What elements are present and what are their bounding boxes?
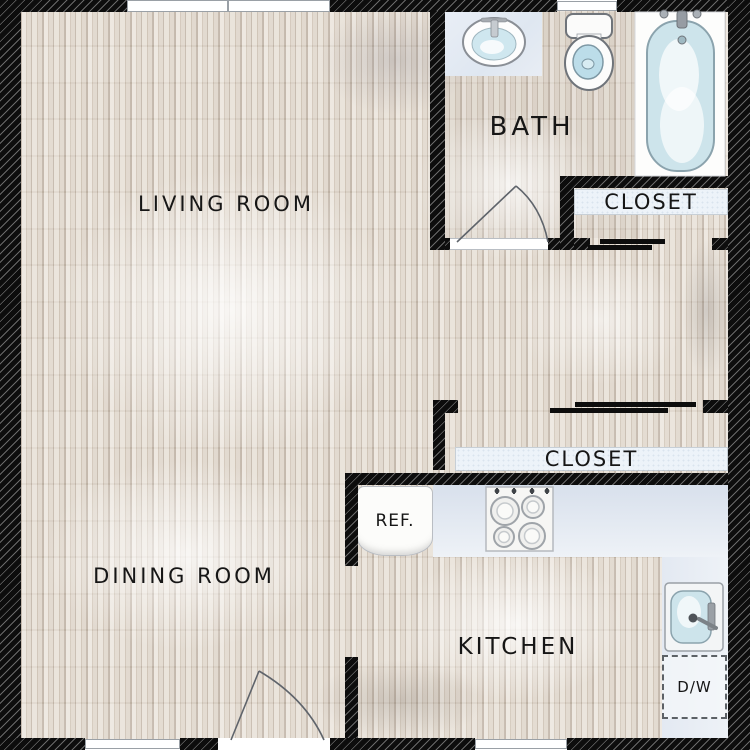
floor-smudge — [315, 660, 485, 740]
floor-shading — [45, 460, 325, 650]
closet-lower-bypass-door — [550, 408, 668, 413]
closet-upper-bypass-door — [600, 239, 665, 244]
closet-upper-band: CLOSET — [574, 189, 728, 215]
kitchen-label: KITCHEN — [458, 634, 579, 660]
wall-closet-lower-left — [433, 400, 445, 470]
living-room-label: LIVING ROOM — [138, 192, 314, 216]
window-dining — [85, 739, 180, 749]
bath-label: BATH — [489, 112, 574, 142]
wall-living-bath — [430, 11, 445, 250]
outer-wall-right — [728, 0, 750, 750]
wall-kitchen-top — [345, 473, 728, 485]
wall-closet-upper-left — [560, 176, 574, 250]
wall-kitchen-west-upper — [345, 473, 358, 566]
floor-smudge — [682, 240, 732, 380]
dishwasher-icon: D/W — [662, 655, 727, 719]
floor-shading — [515, 255, 685, 385]
outer-wall-bottom-1 — [0, 738, 85, 750]
refrigerator-icon: REF. — [357, 486, 433, 556]
outer-wall-bottom-2 — [180, 738, 218, 750]
wall-closet-upper-jamb-right — [712, 238, 728, 250]
closet-upper-label: CLOSET — [604, 190, 698, 214]
refrigerator-label: REF. — [375, 511, 414, 531]
window-living-divider — [227, 1, 229, 11]
floor-plan: CLOSET CLOSET REF. D/W — [0, 0, 750, 750]
closet-lower-label: CLOSET — [545, 447, 639, 471]
wall-closet-upper-top — [560, 176, 728, 188]
closet-lower-band: CLOSET — [455, 447, 728, 471]
outer-wall-left — [0, 0, 21, 750]
dishwasher-label: D/W — [677, 678, 711, 696]
window-kitchen — [475, 739, 567, 749]
bath-door-opening — [450, 238, 548, 250]
kitchen-counter-top — [433, 485, 728, 557]
wall-kitchen-west-lower — [345, 657, 358, 738]
dining-room-label: DINING ROOM — [93, 564, 275, 588]
closet-lower-bypass-door — [575, 402, 696, 407]
entry-door-opening — [218, 738, 330, 750]
wall-closet-lower-jamb-right — [703, 400, 728, 413]
outer-wall-bottom-4 — [567, 738, 750, 750]
bathroom-vanity-counter — [445, 11, 542, 76]
outer-wall-bottom-3 — [330, 738, 475, 750]
closet-upper-bypass-door — [588, 245, 652, 250]
window-bath — [557, 1, 617, 11]
